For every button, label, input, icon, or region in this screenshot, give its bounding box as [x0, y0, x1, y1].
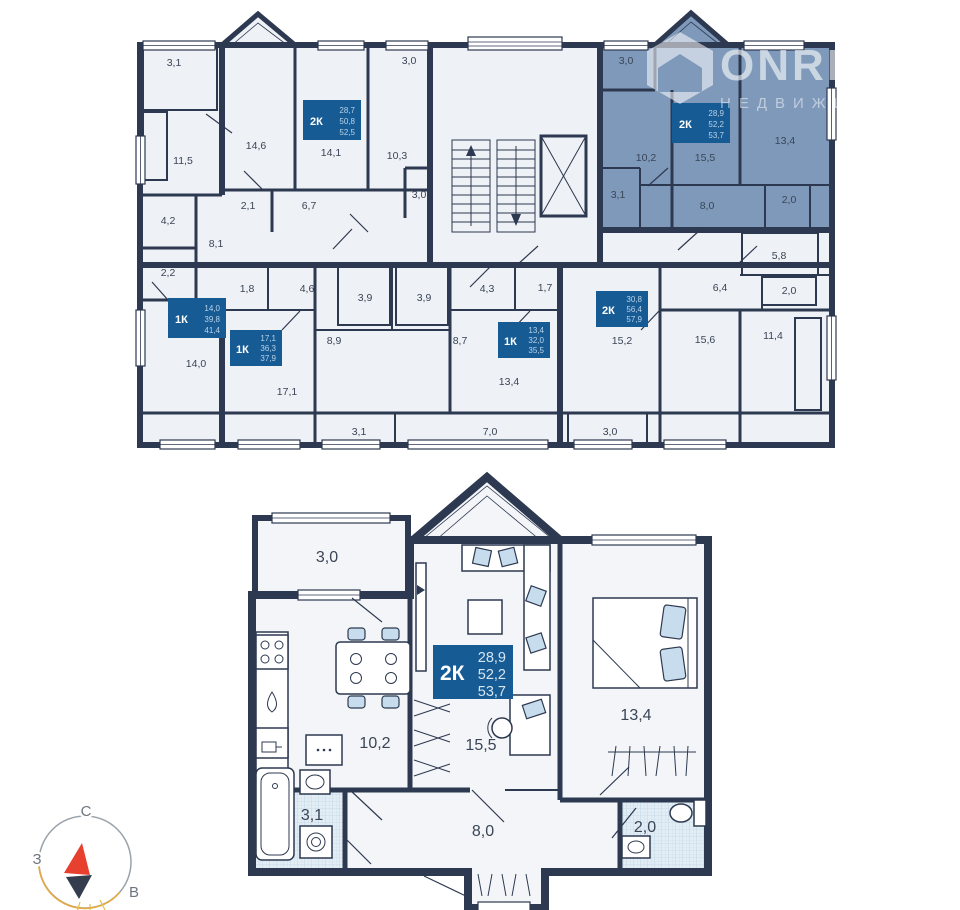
unit-type: 2К	[440, 662, 465, 685]
room-area-label: 3,1	[167, 57, 182, 69]
apartment-detail-plan: 3,0 10,2 15,5 13,4 3,1 8,0 2,0 2К 28,9 5…	[252, 477, 708, 910]
apartment-region-2k-left[interactable]	[222, 45, 430, 265]
room-area-label: 10,2	[636, 152, 657, 164]
unit-area-total: 53,7	[708, 131, 724, 140]
compass-north-label: С	[81, 803, 92, 820]
room-area-label: 10,2	[359, 735, 390, 752]
compass-west-label: З	[32, 851, 41, 868]
chair	[348, 628, 365, 640]
room-area-label: 2,0	[634, 819, 656, 836]
chair	[348, 696, 365, 708]
floorplan-canvas: 3,1 14,6 14,1 10,3 3,0 2,1 6,7 3,0 3,0 1…	[0, 0, 960, 910]
room-area-label: 8,0	[472, 823, 494, 840]
room-area-label: 3,1	[301, 807, 323, 824]
bathtub	[256, 768, 294, 860]
room-area-label: 8,0	[700, 200, 715, 212]
desk-chair	[492, 718, 512, 738]
detail-unit-card[interactable]: 2К 28,9 52,2 53,7	[433, 645, 513, 700]
tv-stand	[416, 563, 426, 671]
apartment-region-1k-a[interactable]	[140, 112, 222, 445]
apartment-region-2k-right[interactable]	[560, 230, 832, 445]
compass-east-label: В	[129, 884, 139, 901]
dining-table	[336, 642, 410, 694]
unit-area-living: 52,2	[708, 120, 724, 129]
pillow	[473, 548, 492, 567]
apartment-region-1k-c[interactable]	[392, 265, 560, 445]
floorplan-page: 3,1 14,6 14,1 10,3 3,0 2,1 6,7 3,0 3,0 1…	[0, 0, 960, 910]
kitchen-sink-cabinet	[256, 728, 288, 758]
washing-machine	[300, 826, 332, 858]
bath-sink	[300, 770, 330, 794]
pillow	[498, 547, 517, 566]
cabinet-dots-icon	[306, 735, 342, 765]
chair	[382, 696, 399, 708]
unit-area-living: 52,2	[478, 667, 506, 683]
chair	[382, 628, 399, 640]
room-area-label: 13,4	[775, 135, 796, 147]
bay-left	[222, 14, 295, 45]
coffee-table	[468, 600, 502, 634]
room-area-label: 3,0	[316, 549, 338, 566]
room-area-label: 3,1	[611, 189, 626, 201]
room-area-label: 3,0	[619, 55, 634, 67]
room-area-label: 13,4	[620, 707, 651, 724]
watermark-subtitle: НЕДВИЖИМОСТЬ	[720, 95, 946, 112]
compass-north-needle	[64, 843, 90, 875]
wc-sink	[622, 836, 650, 858]
watermark-brand: ONREALT	[720, 41, 950, 90]
pillow	[660, 605, 686, 640]
apartment-region-1k-b[interactable]	[222, 265, 392, 445]
room-area-label: 15,5	[465, 737, 496, 754]
unit-area-rooms: 28,9	[478, 650, 506, 666]
stove-icon	[256, 635, 288, 669]
unit-type: 2К	[679, 119, 692, 131]
compass-south-needle	[66, 875, 92, 899]
unit-area-total: 53,7	[478, 684, 506, 700]
room-area-label: 15,5	[695, 152, 716, 164]
compass: С З В	[32, 803, 139, 910]
pillow	[660, 647, 686, 682]
room-area-label: 2,0	[782, 194, 797, 206]
